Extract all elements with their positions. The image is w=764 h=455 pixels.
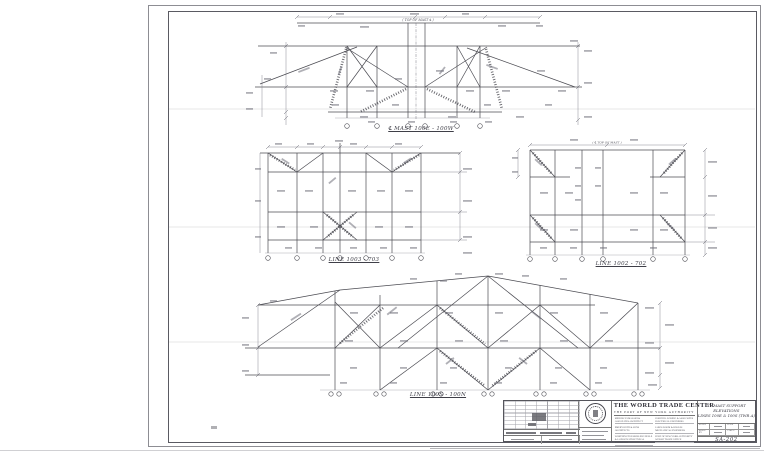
- dimension-ticks: [284, 15, 580, 122]
- caption-mid-right-elevation: LINE 1002 - 702: [583, 261, 659, 267]
- field-label: MADE BY: [698, 430, 710, 436]
- drawing-sheet-canvas: ( TOP OF MAST ℄ ): [0, 0, 764, 455]
- firm-name: JOSEPH R. LORING & ASSOCIATES ELECTRICAL…: [655, 417, 694, 425]
- firm-name: EMERY ROTH & SONS ARCHITECTS: [615, 426, 654, 434]
- top-of-mast-label: ( TOP OF MAST ℄ ): [402, 18, 434, 22]
- revision-entry-smudge: [528, 423, 536, 426]
- dimension-ticks: [266, 145, 462, 242]
- top-chords: [258, 276, 638, 305]
- diagonal-members: [268, 153, 421, 240]
- owner-title: THE PORT OF NEW YORK AUTHORITY: [614, 410, 695, 414]
- annotation-smudges: [255, 140, 472, 254]
- consultant-firms: MINORU YAMASAKI & ASSOCIATES ARCHITECT E…: [614, 417, 695, 448]
- sheet-title-column: TV MAST SUPPORT ELEVATIONS LINES 100E & …: [698, 401, 755, 441]
- truss-elevation-mid-left-drawing: [255, 140, 480, 268]
- levels: [526, 145, 715, 255]
- seal-caption-box: [579, 427, 612, 444]
- sheet-title: TV MAST SUPPORT ELEVATIONS LINES 100E & …: [698, 401, 755, 424]
- title-fields: SCALE DATE MADE BY CHK'D: [698, 424, 755, 437]
- field-label: CHK'D: [726, 430, 738, 436]
- revision-footer: [504, 435, 580, 444]
- scan-artifact-line: [0, 450, 764, 451]
- caption-top-elevation: ℄ MAST 100E - 100W: [381, 126, 461, 132]
- columns-and-dim-lines: [262, 23, 578, 125]
- truss-elevation-bottom-drawing: [240, 272, 710, 402]
- column-bubbles: [329, 392, 644, 396]
- caption-bottom-elevation: LINE 100S - 100N: [396, 392, 480, 398]
- caption-mid-left-elevation: LINE 1003 - 703: [308, 257, 400, 263]
- diagonal-members: [258, 276, 638, 390]
- diagonal-members: [530, 150, 685, 242]
- port-authority-seal-icon: [585, 403, 606, 424]
- columns: [258, 276, 660, 390]
- stray-mark: [211, 426, 217, 429]
- sheet-title-line: LINES 100E & 100S (TWR A): [698, 413, 755, 418]
- firm-name: WORTHINGTON SKILLING HELLE & JACKSON STR…: [615, 435, 654, 446]
- diagonal-members: [260, 46, 575, 112]
- dimension-ticks: [256, 301, 662, 390]
- drawing-number: SA-202: [698, 437, 755, 445]
- firm-name: PORT OF NEW YORK AUTHORITY WORLD TRADE O…: [655, 435, 694, 443]
- levels: [260, 147, 467, 253]
- annotation-smudges: [512, 139, 717, 249]
- scan-artifact-line: [430, 448, 760, 449]
- truss-elevation-top-drawing: ( TOP OF MAST ℄ ): [240, 12, 670, 137]
- firm-name: JAROS BAUM & BOLLES MECHANICAL ENGINEERS: [655, 426, 694, 434]
- revision-table: [504, 401, 579, 441]
- firm-name: MINORU YAMASAKI & ASSOCIATES ARCHITECT: [615, 417, 654, 425]
- firms-right-column: JOSEPH R. LORING & ASSOCIATES ELECTRICAL…: [654, 417, 695, 448]
- divider: [614, 415, 695, 416]
- revision-entry-smudge: [532, 413, 546, 421]
- field-value: [739, 430, 755, 436]
- firms-left-column: MINORU YAMASAKI & ASSOCIATES ARCHITECT E…: [614, 417, 655, 448]
- project-title: THE WORLD TRADE CENTER: [614, 402, 695, 409]
- annotation-smudges: [242, 273, 674, 386]
- annotation-smudges: [246, 13, 592, 123]
- field-value: [710, 430, 726, 436]
- columns: [260, 143, 460, 253]
- project-identity: THE WORLD TRADE CENTER THE PORT OF NEW Y…: [612, 401, 698, 441]
- dimension-ticks: [516, 143, 707, 257]
- title-block: THE WORLD TRADE CENTER THE PORT OF NEW Y…: [503, 400, 756, 442]
- seal-column: [579, 401, 612, 441]
- truss-elevation-mid-right-drawing: ( ℄ TOP OF MAST ): [510, 137, 725, 269]
- top-of-mast-label: ( ℄ TOP OF MAST ): [592, 141, 622, 145]
